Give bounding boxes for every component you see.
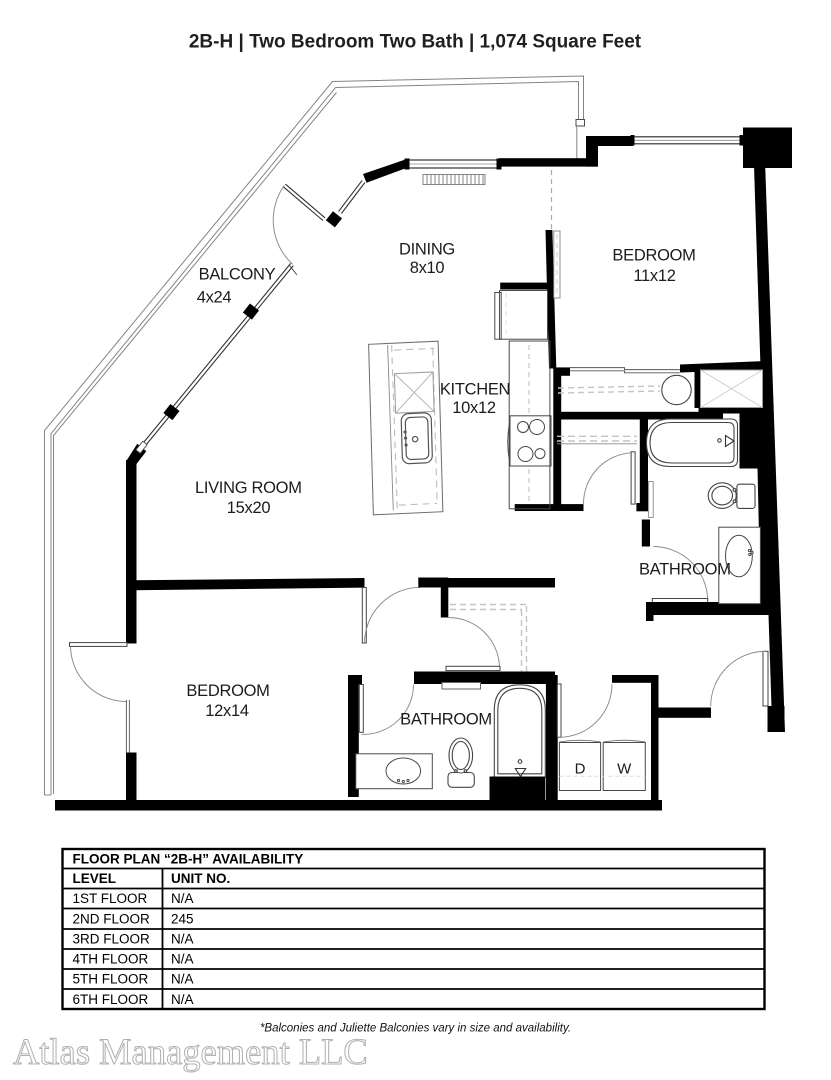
- svg-text:2ND FLOOR: 2ND FLOOR: [73, 911, 151, 926]
- svg-text:BATHROOM: BATHROOM: [639, 561, 731, 579]
- svg-text:8x10: 8x10: [410, 259, 445, 277]
- svg-text:DINING: DINING: [399, 241, 455, 259]
- svg-text:KITCHEN: KITCHEN: [440, 380, 510, 398]
- svg-text:N/A: N/A: [171, 972, 194, 987]
- svg-text:1ST FLOOR: 1ST FLOOR: [73, 891, 148, 906]
- svg-text:10x12: 10x12: [452, 399, 496, 417]
- svg-text:LIVING ROOM: LIVING ROOM: [195, 479, 302, 497]
- svg-text:BATHROOM: BATHROOM: [400, 711, 492, 729]
- svg-text:5TH FLOOR: 5TH FLOOR: [73, 972, 149, 987]
- svg-text:BEDROOM: BEDROOM: [612, 246, 695, 264]
- svg-text:245: 245: [171, 911, 194, 926]
- svg-text:BEDROOM: BEDROOM: [186, 682, 269, 700]
- svg-text:2B-H | Two Bedroom Two Bath |: 2B-H | Two Bedroom Two Bath | 1,074 Squa…: [189, 32, 642, 53]
- svg-text:11x12: 11x12: [633, 267, 675, 285]
- svg-text:BALCONY: BALCONY: [199, 266, 276, 284]
- svg-text:D: D: [575, 761, 586, 778]
- svg-text:6TH FLOOR: 6TH FLOOR: [73, 992, 149, 1007]
- svg-text:4TH FLOOR: 4TH FLOOR: [73, 952, 149, 967]
- svg-text:N/A: N/A: [171, 992, 194, 1007]
- svg-text:4x24: 4x24: [197, 289, 232, 307]
- svg-text:W: W: [617, 761, 632, 778]
- svg-text:FLOOR PLAN “2B-H” AVAILABILITY: FLOOR PLAN “2B-H” AVAILABILITY: [73, 852, 304, 867]
- svg-text:3RD FLOOR: 3RD FLOOR: [73, 932, 151, 947]
- svg-text:12x14: 12x14: [205, 702, 249, 720]
- svg-text:Atlas Management LLC: Atlas Management LLC: [13, 1031, 368, 1072]
- svg-text:N/A: N/A: [171, 952, 194, 967]
- svg-text:LEVEL: LEVEL: [73, 871, 117, 886]
- svg-text:N/A: N/A: [171, 932, 194, 947]
- svg-text:UNIT NO.: UNIT NO.: [171, 871, 230, 886]
- svg-text:15x20: 15x20: [227, 499, 271, 517]
- svg-text:N/A: N/A: [171, 891, 194, 906]
